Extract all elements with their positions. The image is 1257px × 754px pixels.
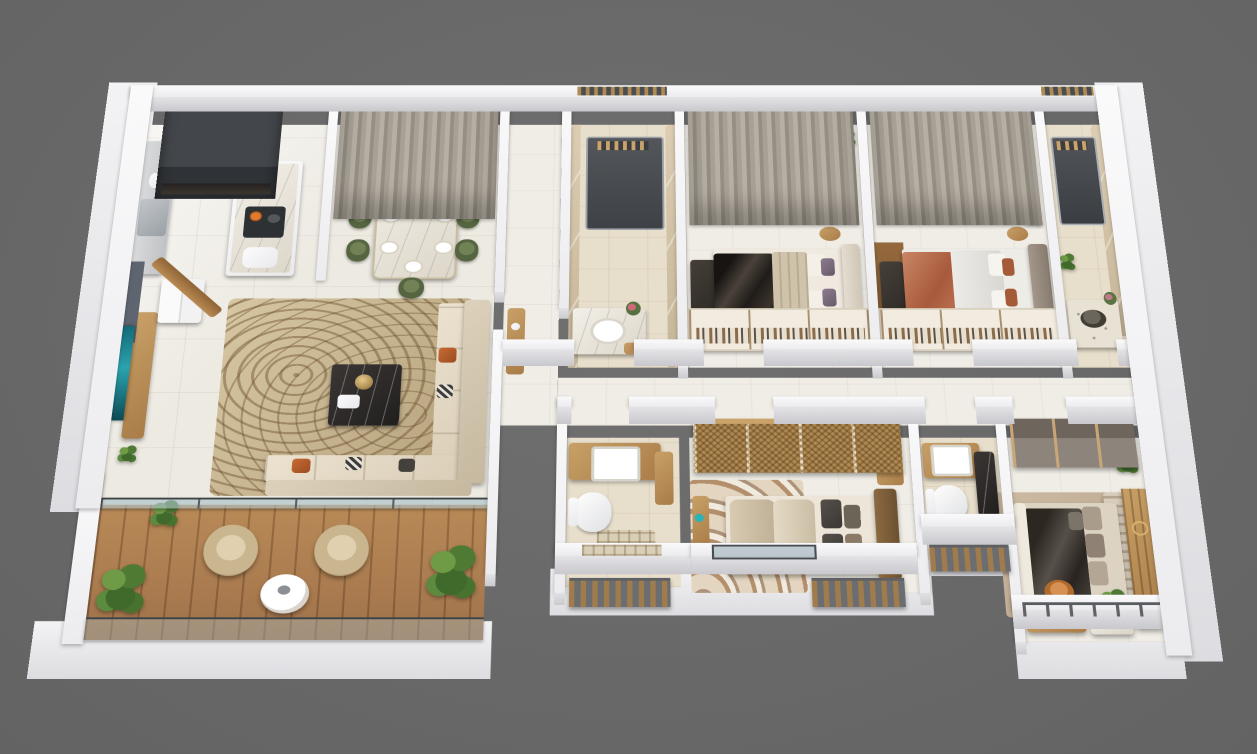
dining-chair: [455, 239, 479, 261]
bedroom1-purple-pillow: [821, 258, 836, 276]
bedroom3-taupe-pillow: [843, 505, 861, 528]
bedroom1-purple-pillow: [822, 289, 837, 307]
balcony-plant-east: [420, 536, 482, 612]
bedroom2-tv-chest: [879, 261, 906, 311]
sofa-back-south: [265, 480, 472, 496]
orange-pillow: [291, 459, 311, 473]
master-metal-railing: [1022, 602, 1161, 616]
bathroom4-toilet-tank: [925, 489, 936, 516]
bathroom1-flowers: [626, 302, 641, 316]
wall-bathroom4-south: [921, 514, 1016, 527]
striped-pillow: [437, 385, 454, 399]
balcony-plant-west: [87, 556, 154, 625]
living-plant: [114, 443, 141, 466]
master-pillow: [1085, 534, 1106, 558]
bedroom2-curtains: [868, 95, 1042, 225]
bedroom2-rust-pillow: [1002, 258, 1015, 276]
wall-corridor-north: [634, 339, 704, 349]
wall-corridor-south: [773, 396, 925, 406]
master-pillow: [1088, 561, 1110, 585]
bathroom3-shelf: [655, 452, 674, 505]
bedroom3-dark-pillow: [820, 499, 842, 528]
striped-pillow: [345, 457, 362, 470]
bathroom2-shower-slats: [1056, 141, 1087, 150]
stand-mixer: [242, 247, 279, 268]
bedroom3-glass-window: [712, 545, 817, 560]
cooktop: [243, 207, 286, 238]
bathroom3-slat-railing: [569, 578, 671, 607]
bedroom1-side-table: [819, 227, 841, 241]
bathroom1-shower: [585, 137, 664, 230]
wall-corridor-north: [503, 339, 575, 349]
master-wardrobe: [1009, 419, 1139, 468]
north-slat-window-bath2: [1041, 87, 1094, 96]
wall-corridor-north: [972, 339, 1077, 349]
bathroom3-toilet-tank: [568, 498, 579, 527]
wall-corridor-south: [975, 396, 1013, 406]
floor-plan-3d: [67, 114, 1182, 653]
bathroom1-shower-slats: [598, 141, 649, 150]
wall-corridor-south: [629, 396, 715, 406]
bedroom2-side-table: [1006, 227, 1029, 241]
north-slat-window-bath1: [577, 87, 667, 96]
dining-curtains: [333, 95, 499, 219]
master-pillow: [1082, 507, 1103, 530]
dining-chair: [398, 277, 425, 298]
wall-corridor-south: [1065, 396, 1135, 406]
kitchen-window-counter-silhouette: [161, 183, 271, 194]
bedroom3-slat-railing: [811, 578, 906, 607]
balcony-glass-railing: [83, 617, 483, 640]
kitchen-range: [136, 199, 169, 236]
dark-pillow: [398, 459, 415, 472]
bathroom1-round-basin: [590, 318, 626, 344]
bathroom4-slat-railing: [929, 545, 1011, 572]
master-gray-pillow: [1068, 512, 1085, 530]
bedroom3-teal-decor: [695, 514, 704, 522]
bathroom3-sink: [591, 446, 640, 481]
bedroom1-curtains: [687, 95, 859, 225]
balcony-sliding-glass-door: [100, 498, 488, 509]
orange-pillow: [438, 348, 457, 363]
bedroom2-rust-pillow: [1005, 289, 1019, 307]
bathroom3-toilet-bowl: [574, 492, 612, 532]
scene-background: [0, 0, 1257, 754]
bathroom3-plaid-window: [582, 545, 662, 556]
bedroom3-woven-wardrobe: [693, 419, 903, 473]
bathroom4-sink: [930, 445, 973, 477]
floor-hallway: [500, 125, 562, 426]
wall-corridor-south: [557, 396, 571, 406]
wall-corridor-north: [763, 339, 913, 349]
coffee-table-tray: [337, 395, 360, 409]
